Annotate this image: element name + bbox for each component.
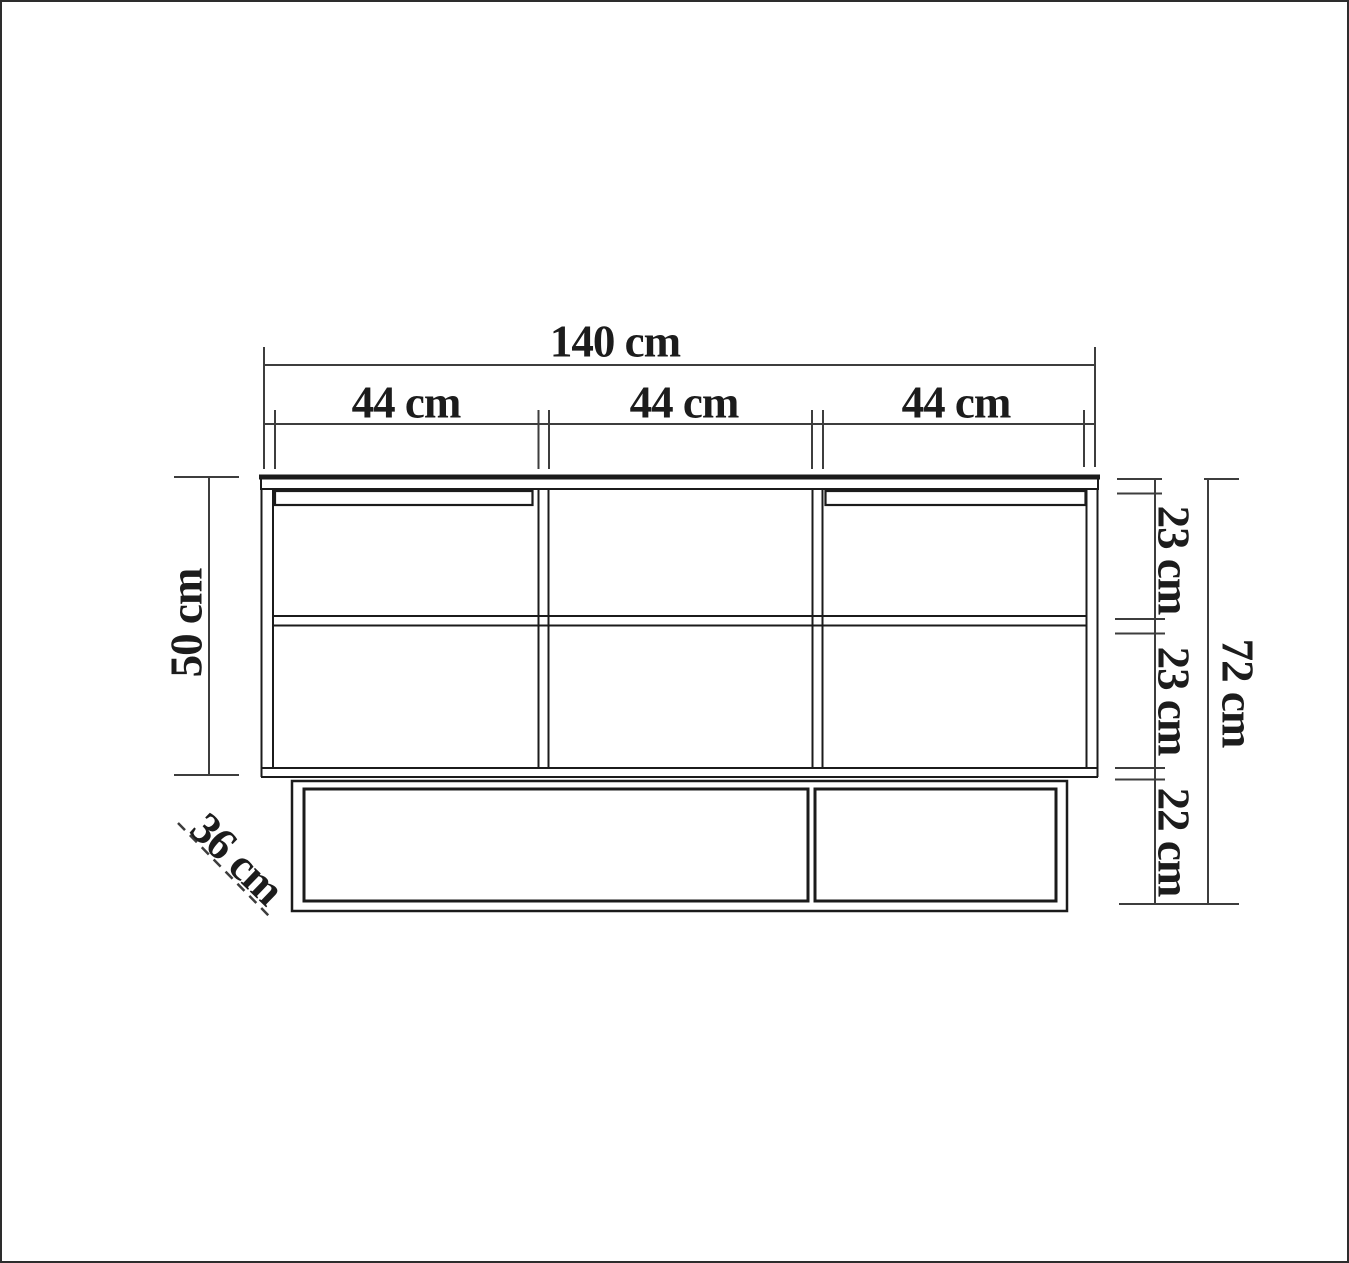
overall-width-label: 140 cm — [550, 320, 680, 365]
base-unit — [292, 781, 1067, 911]
lower-compartment-label: 23 cm — [1151, 647, 1196, 756]
base-frame — [292, 781, 1067, 911]
cabinet-height-label: 50 cm — [165, 569, 210, 678]
drawer-right — [815, 789, 1056, 901]
upper-cabinet — [259, 476, 1100, 777]
upper-compartment-label: 23 cm — [1151, 506, 1196, 615]
section-width-label-2: 44 cm — [630, 381, 739, 426]
section-width-label-1: 44 cm — [352, 381, 461, 426]
total-height-label: 72 cm — [1215, 639, 1260, 748]
section-width-label-3: 44 cm — [902, 381, 1011, 426]
drawer-left — [304, 789, 808, 901]
base-height-label: 22 cm — [1151, 788, 1196, 897]
technical-drawing-canvas: 140 cm 44 cm 44 cm 44 cm 50 cm 23 cm 23 … — [0, 0, 1349, 1263]
door-front-right — [826, 491, 1086, 505]
door-front-left — [275, 491, 533, 505]
